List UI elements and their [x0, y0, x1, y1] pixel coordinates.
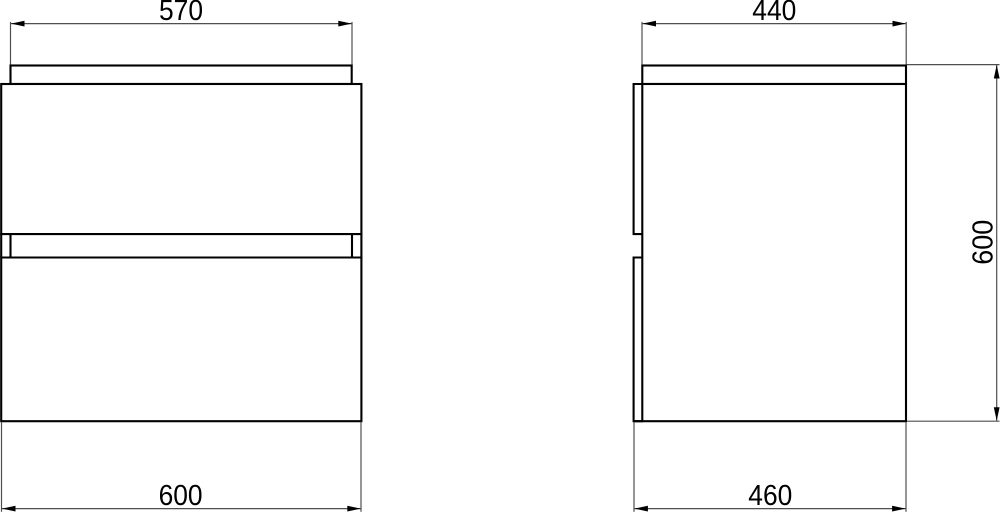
svg-text:440: 440: [752, 0, 796, 26]
svg-text:600: 600: [966, 220, 998, 265]
svg-text:460: 460: [748, 479, 792, 511]
svg-text:570: 570: [159, 0, 203, 26]
svg-text:600: 600: [159, 479, 203, 511]
